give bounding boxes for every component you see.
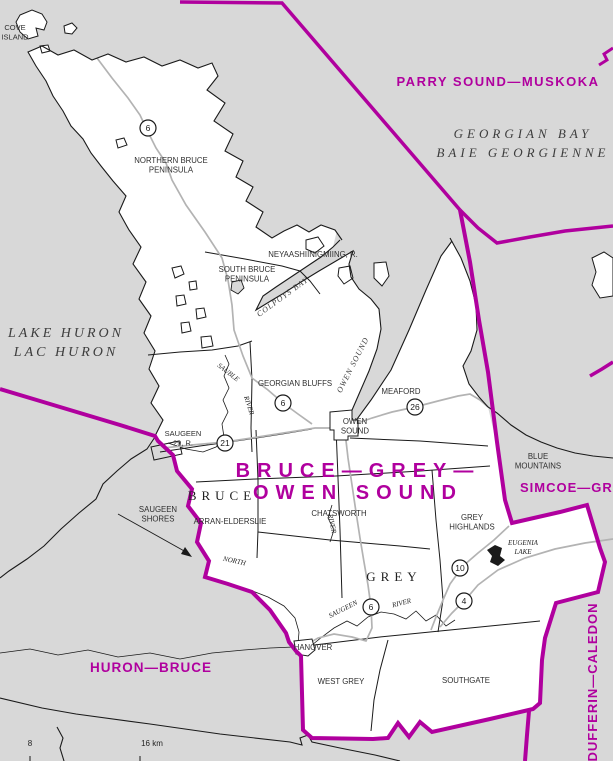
label-bruce-county: BRUCE — [188, 488, 256, 503]
highway-26-shield: 26 — [407, 399, 423, 415]
label-grey-county: GREY — [366, 569, 421, 584]
svg-text:6: 6 — [146, 123, 151, 133]
label-district-title: BRUCE—GREY—OWEN SOUND — [236, 460, 481, 504]
highway-6-shield: 6 — [275, 395, 291, 411]
label-hanover: HANOVER — [294, 643, 333, 652]
highway-6-shield: 6 — [363, 599, 379, 615]
label-west-grey: WEST GREY — [318, 677, 365, 686]
svg-text:26: 26 — [410, 402, 420, 412]
label-meaford: MEAFORD — [382, 387, 421, 396]
svg-text:4: 4 — [462, 596, 467, 606]
highway-10-shield: 10 — [452, 560, 468, 576]
label-arran-elderslie: ARRAN-ELDERSLIE — [194, 517, 267, 526]
label-simcoe-grey: SIMCOE—GREY — [520, 480, 613, 495]
map-canvas: 6621266104 PARRY SOUND—MUSKOKABRUCE—GREY… — [0, 0, 613, 761]
label-georgian-bluffs: GEORGIAN BLUFFS — [258, 379, 332, 388]
electoral-district-map: 6621266104 PARRY SOUND—MUSKOKABRUCE—GREY… — [0, 0, 613, 761]
label-neyaashiinigmiing: NEYAASHIINIGMIING, R. — [268, 250, 358, 259]
label-parry-sound-muskoka: PARRY SOUND—MUSKOKA — [396, 74, 599, 89]
highway-6-shield: 6 — [140, 120, 156, 136]
label-owen-sound-town: OWENSOUND — [341, 417, 370, 436]
label-cove-island: COVEISLAND — [1, 23, 29, 42]
highway-21-shield: 21 — [217, 435, 233, 451]
svg-text:6: 6 — [369, 602, 374, 612]
label-dufferin-caledon: DUFFERIN—CALEDON — [585, 603, 600, 761]
svg-text:10: 10 — [455, 563, 465, 573]
label-southgate: SOUTHGATE — [442, 676, 490, 685]
svg-text:21: 21 — [220, 438, 230, 448]
label-scale-16km: 16 km — [141, 739, 163, 748]
label-south-bruce-peninsula: SOUTH BRUCEPENINSULA — [219, 265, 276, 284]
label-huron-bruce: HURON—BRUCE — [90, 660, 212, 675]
label-saugeen-shores: SAUGEENSHORES — [139, 505, 177, 524]
label-chatsworth: CHATSWORTH — [311, 509, 366, 518]
svg-text:6: 6 — [281, 398, 286, 408]
label-scale-8: 8 — [28, 739, 33, 748]
highway-4-shield: 4 — [456, 593, 472, 609]
